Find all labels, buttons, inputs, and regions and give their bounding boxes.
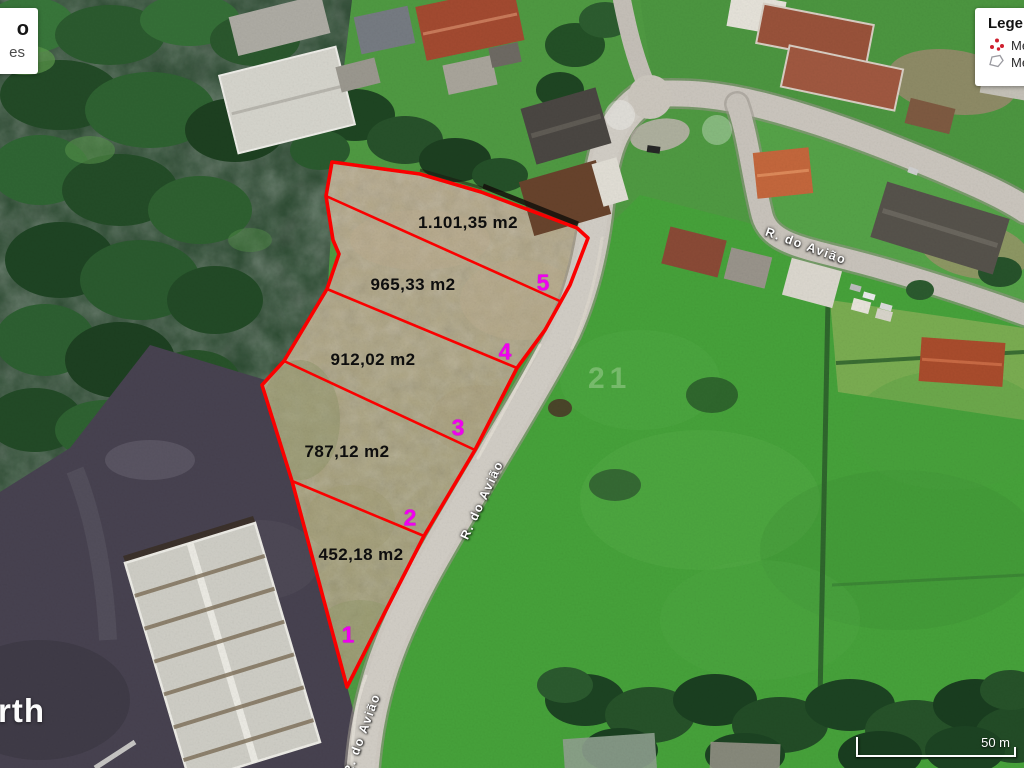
legend-item-label: Me [1011, 55, 1024, 70]
legend-item-label: Me [1011, 38, 1024, 53]
legend-title: Legenda [988, 15, 1024, 32]
scale-bar-label: 50 m [981, 735, 1010, 750]
info-panel-title: o [0, 17, 38, 41]
legend-panel: Legenda Me Me [975, 8, 1024, 86]
measure-polygon-icon [988, 54, 1004, 71]
satellite-map-view[interactable]: R. do Avião R. do Avião R. do Avião 1.10… [0, 0, 1024, 768]
info-panel-subtitle: es [0, 43, 38, 63]
info-panel: o es [0, 8, 38, 74]
scale-bar-line [856, 755, 1016, 757]
measure-points-icon [988, 37, 1004, 54]
scale-bar-right-tick [1014, 747, 1016, 757]
scale-bar-left-tick [856, 737, 858, 757]
legend-item[interactable]: Me [988, 37, 1024, 54]
legend-item[interactable]: Me [988, 54, 1024, 71]
satellite-imagery[interactable] [0, 0, 1024, 768]
image-grain [0, 0, 1024, 768]
